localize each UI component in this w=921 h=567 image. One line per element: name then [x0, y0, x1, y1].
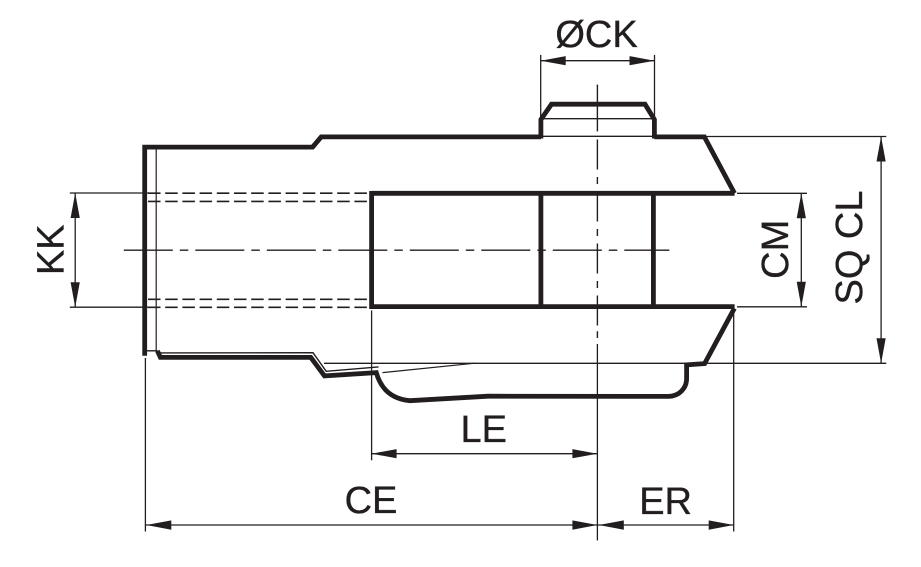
- svg-text:CE: CE: [345, 480, 398, 522]
- svg-text:CM: CM: [755, 220, 797, 279]
- svg-text:KK: KK: [31, 224, 73, 275]
- svg-text:SQ CL: SQ CL: [829, 190, 871, 304]
- svg-text:ER: ER: [639, 481, 692, 523]
- svg-text:LE: LE: [460, 409, 506, 451]
- svg-text:ØCK: ØCK: [555, 14, 637, 56]
